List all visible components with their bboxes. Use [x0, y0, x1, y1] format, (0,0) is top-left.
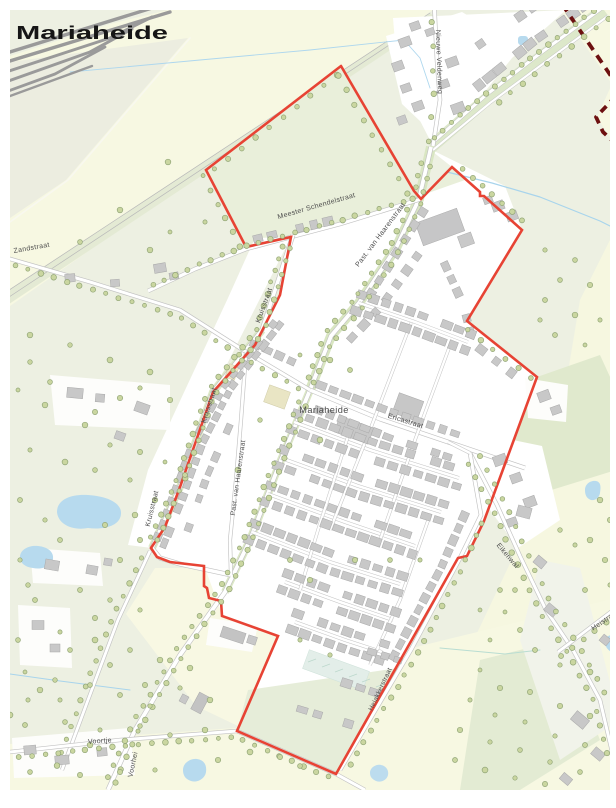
svg-text:Mariaheide: Mariaheide	[16, 22, 168, 43]
svg-text:Mariaheide: Mariaheide	[299, 405, 348, 415]
